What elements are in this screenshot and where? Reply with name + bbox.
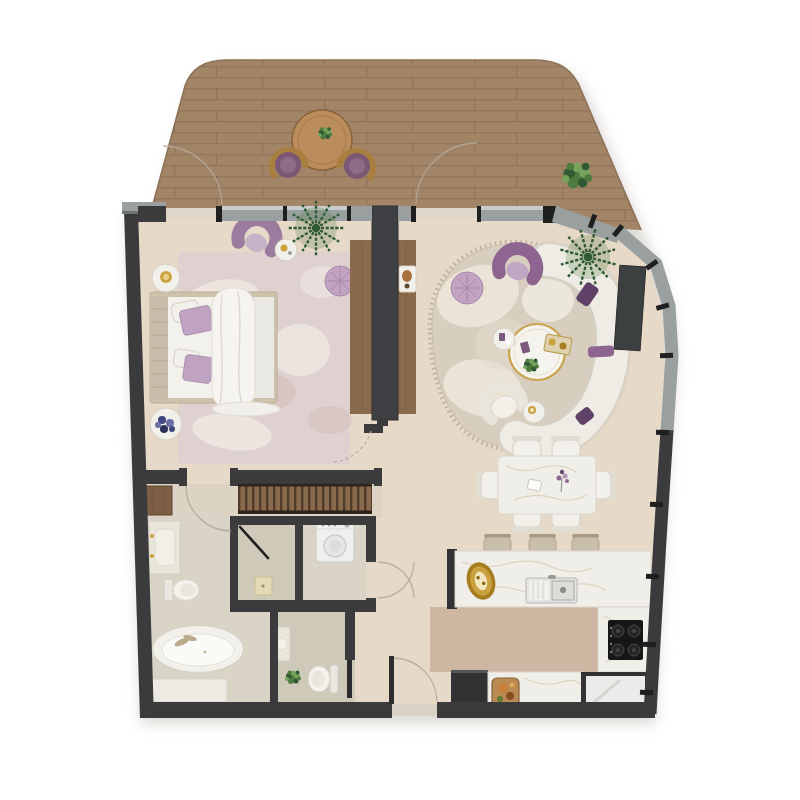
bedroom-pouf-tufts [328,268,352,294]
console-tray [399,266,416,292]
bar-stool-2 [529,534,556,553]
kitchen-counter-right [598,607,650,672]
window-top-3 [351,206,372,221]
bottom-wall-right [437,702,655,718]
sink-faucet [548,575,556,579]
vanity [149,521,180,574]
terrace [152,60,641,230]
washing-machine [316,520,354,562]
living-side-table-small [493,328,515,350]
bar-stool-3 [572,534,599,553]
bed-duvet [212,288,255,410]
bed [150,288,280,416]
dining-table [498,456,596,514]
powder-toilet [308,665,338,693]
bed-pillow-purple-2 [182,354,213,384]
closet-wardrobe-slatted [238,483,372,514]
living-side-table [523,401,545,423]
laundry-room [316,520,354,562]
closet-wardrobe-left [146,486,172,515]
terrace-door-threshold-left [166,208,218,218]
dining-table-card [527,479,542,491]
kitchen-island [447,549,651,609]
entry-door-leaf [389,656,394,704]
bathtub [152,625,244,673]
sofa-cushion-purple-2 [588,345,615,357]
entry-threshold [392,704,437,716]
dining-chair-left [477,470,501,500]
nightstand-top [152,264,180,292]
powder-door-leaf [347,660,352,698]
bar-stool-1 [484,534,511,553]
bath-mat [150,679,227,702]
terrace-door-threshold-right [416,208,477,218]
kitchen-sink [526,575,577,603]
cooktop [608,620,643,660]
bottom-wall-left [140,702,392,718]
floor-plan-image [0,0,800,800]
kitchen-floor [430,607,600,672]
terrace-deck [152,60,641,230]
window-top-4 [398,206,411,221]
wall-tv-panel [614,265,646,351]
nightstand-bottom [150,408,182,440]
floor-plan-svg [0,0,800,800]
toilet [164,579,199,601]
